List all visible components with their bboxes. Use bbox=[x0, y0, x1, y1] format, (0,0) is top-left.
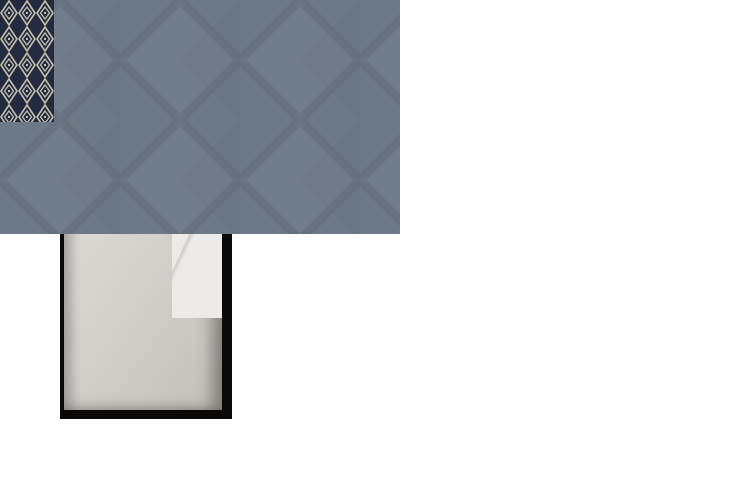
carpet-diamond-pattern bbox=[0, 0, 400, 234]
runner-diamond-pattern bbox=[0, 0, 54, 122]
cabin-render-canvas bbox=[0, 0, 737, 491]
